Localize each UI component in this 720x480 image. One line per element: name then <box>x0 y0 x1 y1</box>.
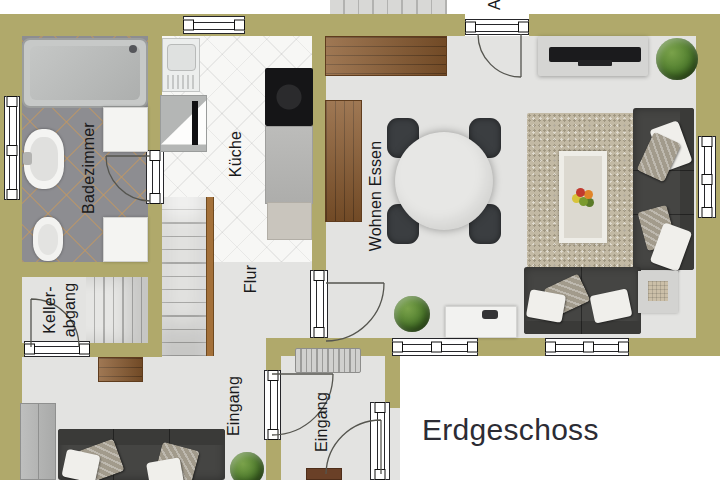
floor-title: Erdgeschoss <box>422 413 599 447</box>
wall-vestibule-right <box>385 356 400 408</box>
room-label-kellerabgang: Keller- abgang <box>40 283 80 338</box>
room-label-kueche: Küche <box>227 131 245 177</box>
room-label-wohnen-essen: Wohnen Essen <box>367 141 385 252</box>
bathtub <box>22 38 148 108</box>
washbasin <box>24 129 64 189</box>
door-living <box>310 270 328 338</box>
plant-top-right <box>656 38 698 80</box>
kitchen-sink-unit <box>162 38 200 92</box>
door-basement <box>24 341 90 357</box>
cooktop <box>265 68 313 126</box>
kitchen-counter-end <box>267 202 312 240</box>
bathtub-drain <box>129 45 137 53</box>
low-sideboard <box>445 306 517 338</box>
kitchen-counter <box>265 126 313 204</box>
stair-handrail <box>206 197 214 356</box>
window-living-right <box>698 136 716 218</box>
sideboard-top <box>325 36 447 76</box>
door-upper-stairs <box>465 19 529 35</box>
coffee-table <box>559 151 607 243</box>
basement-staircase <box>86 277 148 343</box>
plant-hall <box>230 452 264 480</box>
stove-hood <box>160 95 207 152</box>
door-entrance <box>370 402 390 480</box>
door-vestibule <box>264 370 281 440</box>
wall-left <box>0 14 22 480</box>
dining-table <box>395 132 493 230</box>
window-bathroom <box>4 96 20 200</box>
sofa-pillow <box>526 289 566 323</box>
window-kitchen <box>183 16 245 34</box>
wall-bath-bottom <box>22 262 162 277</box>
kellerabgang-line1: Keller- <box>40 283 60 338</box>
upper-stair-fragment <box>330 0 447 14</box>
fruit-bowl <box>576 188 585 197</box>
room-label-eingang-vestibule: Eingang <box>313 392 331 452</box>
toilet <box>33 217 63 261</box>
room-label-stairs-partial: Au <box>486 0 504 10</box>
kellerabgang-line2: abgang <box>60 283 80 338</box>
room-label-flur: Flur <box>242 265 260 293</box>
wall-kitchen-dining <box>312 36 326 272</box>
window-living-bottom-2 <box>545 338 629 356</box>
radiator <box>295 348 361 373</box>
basin-tap <box>23 152 32 165</box>
door-bathroom <box>146 150 164 204</box>
main-staircase <box>160 197 206 356</box>
plant-living <box>394 296 430 332</box>
wall-top-right <box>529 14 720 36</box>
doormat <box>306 468 342 480</box>
sideboard-left <box>325 100 362 222</box>
tv-stand <box>578 60 612 66</box>
drainboard <box>167 75 196 89</box>
room-label-eingang-hall: Eingang <box>225 376 243 436</box>
corner-side-table <box>638 271 678 313</box>
room-label-badezimmer: Badezimmer <box>80 122 98 214</box>
kitchen-sink <box>167 44 196 71</box>
hall-bench <box>98 357 143 382</box>
bathroom-cabinet-top <box>103 107 148 152</box>
window-living-bottom-1 <box>392 338 478 356</box>
wardrobe <box>20 403 56 480</box>
floor-plan: Badezimmer Küche Flur Wohnen Essen Kelle… <box>0 0 720 480</box>
decor-item <box>482 310 498 319</box>
bathroom-cabinet-bottom <box>103 217 148 262</box>
